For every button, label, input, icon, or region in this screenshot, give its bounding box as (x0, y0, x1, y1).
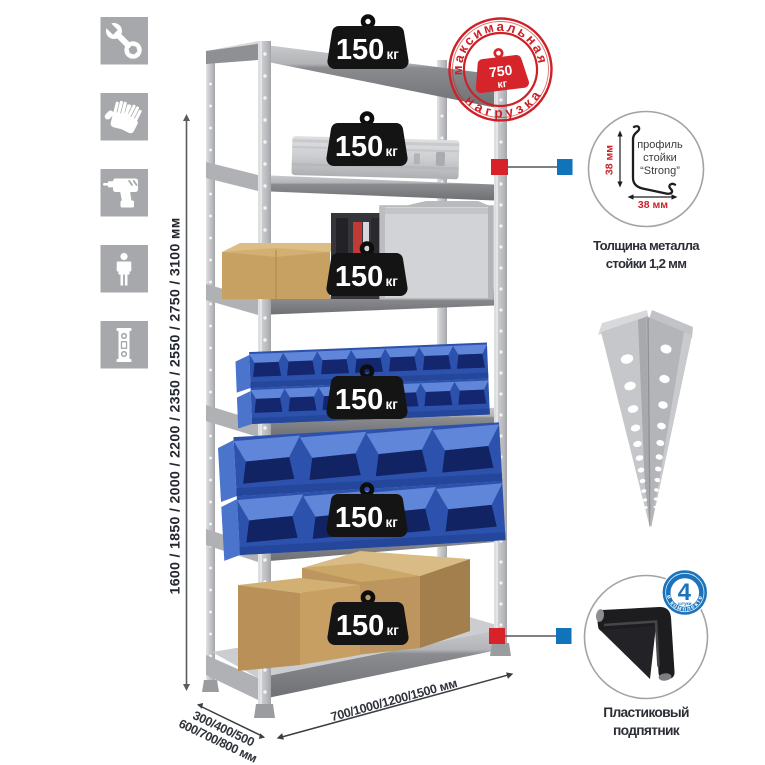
svg-text:кг: кг (387, 623, 400, 638)
svg-text:Толщина металла: Толщина металла (593, 238, 700, 253)
svg-text:кг: кг (387, 47, 400, 62)
svg-text:150: 150 (335, 384, 383, 416)
svg-text:1600 / 1850 / 2000 / 2200 / 23: 1600 / 1850 / 2000 / 2200 / 2350 / 2550 … (168, 217, 184, 594)
svg-text:стойки 1,2 мм: стойки 1,2 мм (606, 256, 687, 271)
svg-text:подпятник: подпятник (613, 723, 680, 738)
svg-text:“Strong”: “Strong” (640, 165, 680, 177)
svg-text:кг: кг (386, 274, 399, 289)
svg-text:150: 150 (336, 34, 384, 66)
svg-text:150: 150 (336, 610, 384, 642)
svg-text:кг: кг (386, 144, 399, 159)
svg-text:Пластиковый: Пластиковый (603, 705, 689, 720)
svg-text:кг: кг (386, 397, 399, 412)
svg-text:стойки: стойки (643, 152, 677, 164)
svg-text:150: 150 (335, 502, 383, 534)
svg-text:150: 150 (335, 131, 383, 163)
svg-text:150: 150 (335, 261, 383, 293)
svg-text:кг: кг (386, 515, 399, 530)
svg-text:38 мм: 38 мм (638, 199, 668, 211)
svg-text:38 мм: 38 мм (604, 145, 616, 175)
svg-text:профиль: профиль (637, 139, 683, 151)
svg-text:750: 750 (488, 62, 513, 81)
